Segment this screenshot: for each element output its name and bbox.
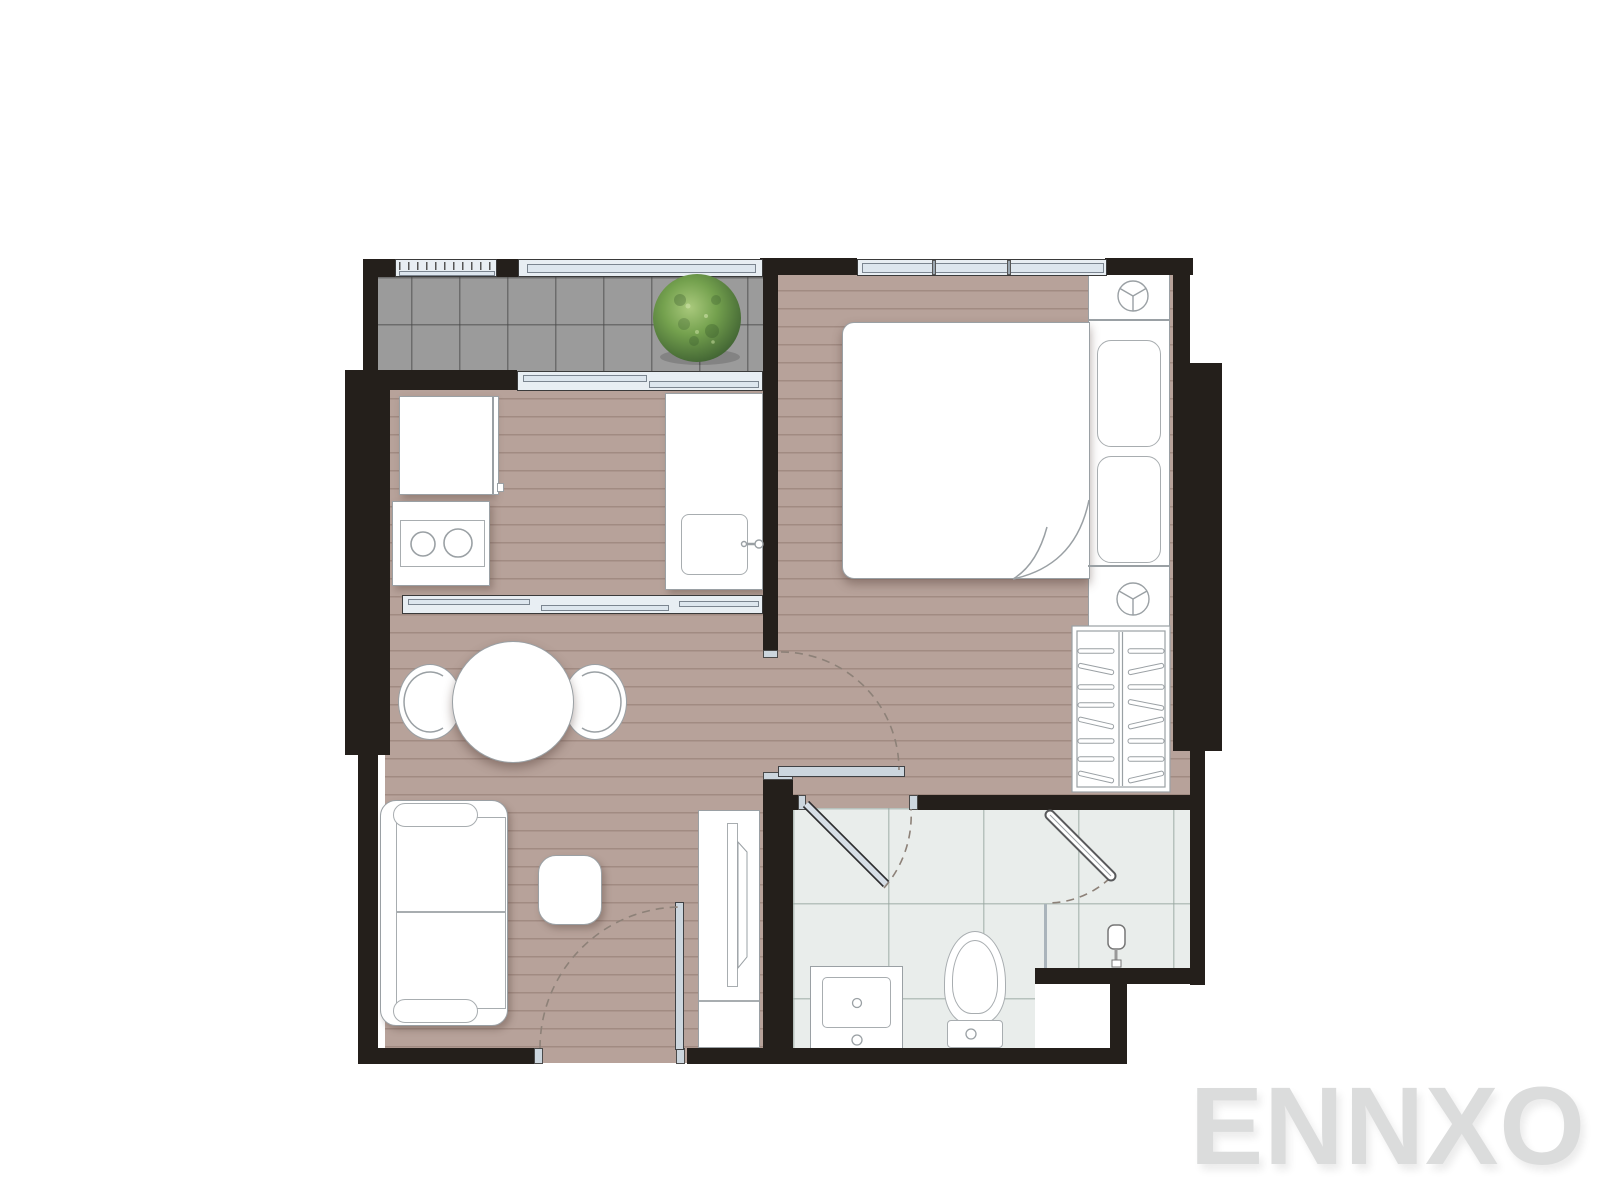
nightstand-divider-top: [1088, 319, 1170, 321]
pillow-top: [1097, 340, 1161, 447]
wall-right-upper: [1173, 258, 1190, 368]
jamb-entrance-right: [676, 1048, 685, 1064]
wall-left-thick: [345, 372, 390, 755]
shower-glass-partition: [1044, 904, 1047, 970]
railing-louver-bar: [399, 271, 495, 276]
wall-balcony-left: [363, 275, 378, 372]
jamb-bedroom-top: [763, 650, 778, 658]
bedroom-window-pane: [862, 263, 1104, 273]
bedroom-door-leaf: [778, 766, 905, 777]
tv-cabinet-shelf: [699, 1000, 759, 1002]
railing-louver-ticks: [399, 262, 495, 270]
balcony-floor: [363, 277, 763, 372]
wall-balcony-south: [345, 370, 517, 390]
slider-panel-right: [649, 381, 759, 388]
window-mullion-1: [932, 260, 936, 275]
refrigerator-handle: [497, 483, 504, 492]
stove-burner-panel: [400, 520, 485, 567]
wall-railing-divider: [497, 259, 518, 277]
floor-plan: ENNXO: [0, 0, 1600, 1204]
balcony-railing: [518, 259, 763, 277]
wall-bedroom-divider: [763, 275, 778, 650]
wall-right-bathroom: [1190, 748, 1205, 985]
entrance-door-leaf: [675, 902, 684, 1050]
toilet-tank: [947, 1020, 1003, 1048]
wall-bathroom-left: [763, 772, 793, 1048]
wall-right-thick: [1173, 363, 1222, 751]
sofa-armrest-top: [393, 803, 478, 827]
nightstand-divider-bottom: [1088, 565, 1170, 567]
coffee-table: [538, 855, 602, 925]
wall-shower-bottom: [1035, 968, 1205, 984]
wall-bathroom-top-main: [918, 795, 1190, 810]
sofa-seat: [396, 817, 506, 1009]
jamb-bathroom-right: [909, 795, 918, 810]
double-bed: [842, 322, 1090, 579]
window-mullion-2: [1007, 260, 1011, 275]
watermark-logo: ENNXO: [1190, 1072, 1586, 1182]
partition-panel-1: [408, 599, 530, 605]
sofa-seat-divider: [396, 911, 506, 913]
wall-bottom-right: [687, 1048, 1127, 1064]
wall-bottom-left: [358, 1048, 543, 1064]
sofa-armrest-bottom: [393, 999, 478, 1023]
balcony-railing-louver: [395, 259, 497, 277]
headboard-platform: [1088, 272, 1170, 628]
pillow-bottom: [1097, 456, 1161, 563]
refrigerator-door: [493, 396, 499, 495]
wall-bathroom-top-stub: [763, 795, 798, 810]
jamb-bathroom-left: [798, 795, 806, 810]
refrigerator: [399, 396, 493, 495]
wall-left-lower: [358, 752, 378, 1048]
jamb-entrance-left: [534, 1048, 543, 1064]
toilet-bowl-inner: [952, 940, 998, 1014]
vanity-basin: [822, 977, 891, 1028]
partition-panel-2: [541, 605, 669, 611]
kitchen-glass-partition: [402, 595, 763, 614]
partition-panel-3: [679, 601, 759, 607]
bedroom-window: [857, 259, 1107, 276]
tv-screen: [727, 823, 738, 987]
wall-bedroom-top-left: [760, 258, 857, 275]
kitchen-sink: [681, 514, 748, 575]
slider-panel-left: [523, 375, 647, 382]
railing-panel: [527, 264, 756, 273]
dining-table: [452, 641, 574, 763]
balcony-sliding-door: [517, 371, 763, 391]
